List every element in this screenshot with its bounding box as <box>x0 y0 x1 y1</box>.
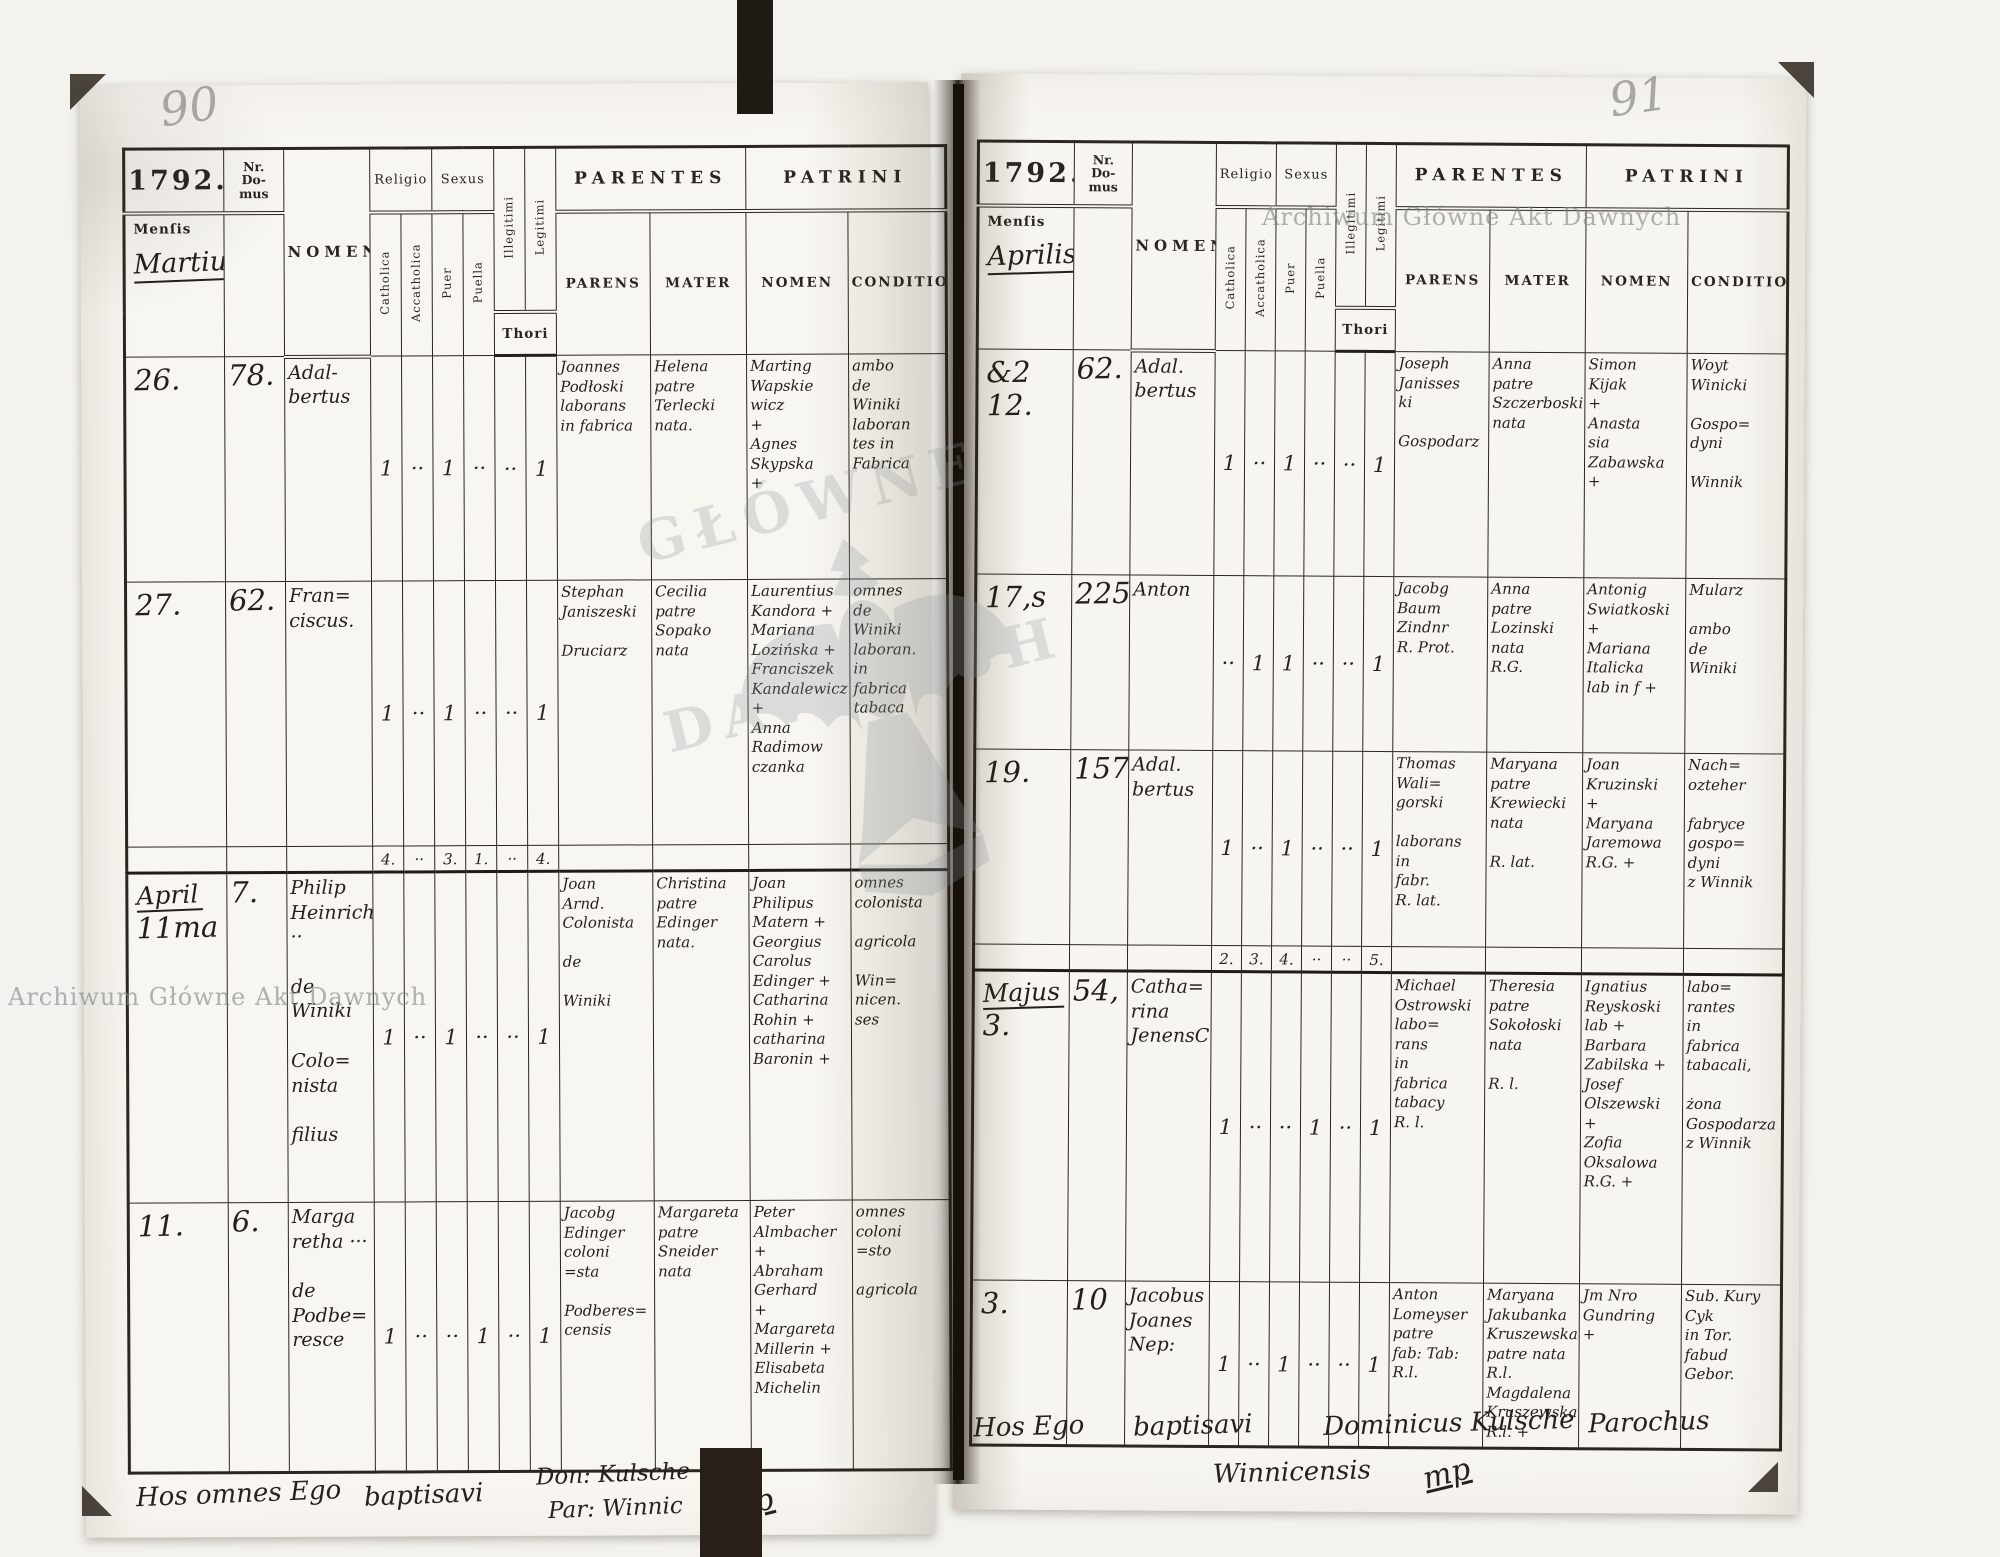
patrini-nomen-cell: Joan Kruzinski + Maryana Jaremowa R.G. + <box>1582 753 1685 949</box>
mater-cell: Margareta patre Sneider nata <box>654 1200 751 1470</box>
puella-label: Puella <box>463 212 495 356</box>
house-number: 62. <box>1076 352 1127 386</box>
total-puer: 4. <box>1271 946 1301 972</box>
tally-illegitimi: ·· <box>496 580 528 845</box>
nomen-label: NOMEN <box>1131 142 1216 351</box>
puella-text: Puella <box>473 261 485 303</box>
tally-accatholica: 1 <box>1243 576 1274 751</box>
handwritten-page-number: 90 <box>156 75 222 137</box>
tally-catholica: 1 <box>1214 350 1245 575</box>
total-puer: 3. <box>435 846 466 872</box>
tally-puella: ·· <box>464 356 496 581</box>
tally-legitimi: 1 <box>528 871 560 1201</box>
accatholica-label: Accatholica <box>401 212 433 356</box>
mensis-header-cell: Menſis Martius <box>124 213 225 357</box>
tally-accatholica: ·· <box>1242 751 1273 946</box>
year-label: 1792. <box>978 141 1074 206</box>
tally-illegitimi: ·· <box>498 1201 530 1471</box>
parens-label: PARENS <box>556 211 651 355</box>
parentes-label: PARENTES <box>1396 144 1586 209</box>
total-catholica: 4. <box>373 846 404 872</box>
religio-label: Religio <box>370 148 432 212</box>
puer-label: Puer <box>432 212 464 356</box>
patrini-nomen-label: NOMEN <box>746 210 849 354</box>
mater-cell: Maryana patre Krewiecki nata R. lat. <box>1486 752 1583 948</box>
mater-cell: Anna patre Szczerboski nata <box>1488 352 1585 578</box>
total-catholica: 2. <box>1211 945 1241 971</box>
illegitimi-label: Illegitimi <box>494 147 526 311</box>
totals-empty <box>1391 947 1485 974</box>
day-number: 11. <box>137 1208 224 1243</box>
manu-propria-flourish: mp <box>1419 1451 1474 1496</box>
month-in-cell: April <box>136 879 203 913</box>
tally-accatholica: ·· <box>405 1202 437 1472</box>
nr-domus-label: Nr. Do- mus <box>224 148 284 212</box>
nr-domus-empty-cell <box>1073 206 1132 350</box>
day-number: 27. <box>135 587 222 622</box>
mensis-cell: 26. <box>125 357 226 582</box>
conditio-cell: Mularz ambo de Winiki <box>1685 578 1786 754</box>
nr-domus-label: Nr. Do- mus <box>1074 142 1132 206</box>
parens-cell: Joseph Janisses ki Gospodarz <box>1394 352 1489 578</box>
tally-accatholica: ·· <box>1240 972 1272 1282</box>
total-accatholica: 3. <box>1241 946 1271 972</box>
puella-text: Puella <box>1315 257 1327 299</box>
illegitimi-text: Illegitimi <box>504 196 516 259</box>
attestation-parish: Par: Winnic <box>548 1493 684 1524</box>
mensis-header-cell: Menſis Aprilis <box>977 205 1074 350</box>
tally-catholica: 1 <box>371 581 403 846</box>
day-number: 11ma <box>136 910 223 945</box>
tally-legitimi: 1 <box>529 1201 561 1471</box>
tally-puella: ·· <box>465 581 497 846</box>
totals-empty <box>227 846 287 872</box>
tally-illegitimi: ·· <box>1332 751 1363 946</box>
house-number: 54, <box>1073 974 1124 1008</box>
house-number: 62. <box>229 584 283 618</box>
conditio-cell: Nach= ozteher fabryce gospo= dyni z Winn… <box>1684 753 1785 949</box>
tally-puella: ·· <box>1303 576 1334 751</box>
tally-catholica: 1 <box>374 1202 406 1472</box>
conditio-cell: Woyt Winicki Gospo= dyni Winnik <box>1686 353 1787 579</box>
tally-illegitimi: ·· <box>497 871 529 1201</box>
accatholica-text: Accatholica <box>411 243 423 322</box>
attestation-priest: Don: Kulsche <box>535 1459 690 1491</box>
header-band-top: 1792. Nr. Do- mus NOMEN Religio Sexus Il… <box>124 146 946 214</box>
header-band-top: 1792. Nr. Do- mus NOMEN Religio Sexus Il… <box>978 141 1788 210</box>
legitimi-text: Legitimi <box>535 199 547 255</box>
house-number: 10 <box>1071 1283 1122 1317</box>
tally-legitimi: 1 <box>1362 751 1393 946</box>
parens-cell: Joan Arnd. Colonista de Winiki <box>559 871 654 1201</box>
house-number: 6. <box>231 1205 285 1239</box>
conditio-cell: labo= rantes in fabrica tabacali, żona G… <box>1682 974 1784 1285</box>
tally-catholica: 1 <box>1210 971 1242 1281</box>
tally-catholica: 1 <box>373 872 405 1202</box>
catholica-label: Catholica <box>370 212 402 356</box>
puer-text: Puer <box>1285 262 1297 294</box>
thori-label: Thori <box>494 311 556 355</box>
total-illegitimi: ·· <box>497 845 528 871</box>
tally-puer: ·· <box>436 1202 468 1472</box>
totals-empty <box>1683 948 1783 975</box>
tally-puer: 1 <box>1273 576 1304 751</box>
total-legitimi: 4. <box>528 845 559 871</box>
nr-cell: 78. <box>225 356 286 581</box>
child-name-cell: Adal- bertus <box>285 356 372 581</box>
patrini-nomen-cell: Simon Kijak + Anasta sia Zabawska + <box>1584 353 1687 579</box>
patrini-nomen-cell: Antonig Swiatkoski + Mariana Italicka la… <box>1583 578 1686 754</box>
month-name: Aprilis <box>987 238 1074 275</box>
tally-puer: 1 <box>1274 351 1305 576</box>
tally-puer: 1 <box>433 356 465 581</box>
attestation-text: Hos omnes Ego <box>135 1475 341 1513</box>
house-number: 7. <box>230 876 284 910</box>
patrini-nomen-cell: Peter Almbacher + Abraham Gerhard + Marg… <box>750 1200 853 1470</box>
attestation-priest: Dominicus Kulsche <box>1323 1405 1575 1442</box>
tally-legitimi: 1 <box>1360 972 1392 1282</box>
tally-accatholica: ·· <box>402 581 434 846</box>
attestation-title: Parochus <box>1588 1406 1710 1439</box>
house-number: 78. <box>228 359 282 393</box>
mensis-cell: April 11ma <box>127 873 228 1203</box>
tally-legitimi: 1 <box>527 580 559 845</box>
totals-empty <box>127 847 227 873</box>
tally-catholica: ·· <box>1213 575 1244 750</box>
accatholica-text: Accatholica <box>1255 238 1267 317</box>
tally-catholica: 1 <box>1212 750 1243 945</box>
tally-illegitimi: ·· <box>1330 972 1362 1282</box>
patrini-label: PATRINI <box>1586 145 1788 210</box>
total-puella: ·· <box>1301 946 1331 972</box>
sexus-label: Sexus <box>1276 143 1336 207</box>
total-legitimi: 5. <box>1361 946 1391 972</box>
tally-puella: ·· <box>1302 751 1333 946</box>
religio-label: Religio <box>1216 142 1276 206</box>
spine-ribbon-bottom <box>700 1448 762 1557</box>
catholica-text: Catholica <box>380 251 392 315</box>
patrini-label: PATRINI <box>746 146 946 211</box>
tally-puer: 1 <box>1272 751 1303 946</box>
register-row: Majus 3. 54, Catha= rina JenensC 1 ·· ··… <box>972 970 1784 1285</box>
attestation-parish: Winnicensis <box>1212 1455 1371 1490</box>
nr-cell: 6. <box>228 1202 289 1472</box>
nr-domus-empty-cell <box>224 212 285 356</box>
child-name-cell: Marga retha ··· de Podbe= resce <box>288 1202 375 1472</box>
parentes-label: PARENTES <box>556 146 746 211</box>
child-name-cell: Catha= rina JenensC <box>1126 971 1212 1282</box>
child-name-cell: Philip Heinrich ·· de Winiki Colo= nista… <box>287 872 374 1202</box>
mensis-cell: 11. <box>128 1203 229 1473</box>
tally-illegitimi: ·· <box>495 355 527 580</box>
patrini-nomen-cell: Ignatius Reyskoski lab + Barbara Zabilsk… <box>1580 974 1684 1285</box>
tally-illegitimi: ·· <box>1333 576 1364 751</box>
totals-empty <box>1485 947 1581 974</box>
thori-label: Thori <box>1335 307 1395 351</box>
handwritten-page-number: 91 <box>1606 66 1671 127</box>
legitimi-label: Legitimi <box>525 147 557 311</box>
nr-cell: 62. <box>226 581 287 846</box>
puer-text: Puer <box>442 267 454 299</box>
total-accatholica: ·· <box>404 846 435 872</box>
mensis-cell: 27. <box>126 582 227 847</box>
mensis-cell: Majus 3. <box>972 970 1070 1281</box>
mensis-label: Menſis <box>987 213 1069 230</box>
tally-accatholica: ·· <box>404 872 436 1202</box>
catholica-text: Catholica <box>1225 245 1237 309</box>
register-row: 11. 6. Marga retha ··· de Podbe= resce 1… <box>128 1200 951 1474</box>
totals-empty <box>1581 948 1683 975</box>
tally-puer: ·· <box>1270 972 1302 1282</box>
parens-cell: Jacobg Baum Zindnr R. Prot. <box>1393 577 1488 753</box>
child-name-cell: Adal. bertus <box>1130 350 1215 576</box>
attestation-text: baptisavi <box>363 1478 483 1513</box>
spine-ribbon-top <box>737 0 773 114</box>
archive-watermark-text: Archiwum Główne Akt Dawnych <box>8 983 427 1011</box>
parens-cell: Thomas Wali= gorski laborans in fabr. R.… <box>1392 752 1487 948</box>
tally-puella: ·· <box>1304 351 1335 576</box>
tally-legitimi: 1 <box>526 355 558 580</box>
baptism-attestation: Hos Ego baptisavi Dominicus Kulsche Paro… <box>963 1403 1784 1508</box>
tally-puella: ·· <box>466 872 498 1202</box>
tally-accatholica: ·· <box>402 356 434 581</box>
mensis-label: Menſis <box>133 221 219 237</box>
scanned-register-photo: { "watermark": { "archive_name": "Archiw… <box>0 0 2000 1557</box>
archive-watermark-text: Archiwum Główne Akt Dawnych <box>1262 203 1681 231</box>
day-number: 3. <box>982 1008 1064 1042</box>
parens-cell: Michael Ostrowski labo= rans in fabrica … <box>1390 973 1486 1284</box>
day-number: 3. <box>981 1286 1063 1320</box>
tally-catholica: 1 <box>371 356 403 581</box>
conditio-label: CONDITIO <box>848 210 947 354</box>
eagle-icon <box>684 484 1099 979</box>
tally-puella: 1 <box>467 1202 499 1472</box>
nr-cell: 54, <box>1068 971 1128 1281</box>
tally-puer: 1 <box>434 581 466 846</box>
tally-legitimi: 1 <box>1364 351 1395 576</box>
tally-legitimi: 1 <box>1363 576 1394 751</box>
nomen-label: NOMEN <box>284 148 371 356</box>
conditio-label: CONDITIO <box>1687 209 1788 354</box>
year-label: 1792. <box>124 149 224 213</box>
tally-illegitimi: ·· <box>1334 351 1365 576</box>
tally-accatholica: ·· <box>1244 351 1275 576</box>
day-number: 26. <box>134 363 221 398</box>
catholica-label: Catholica <box>1215 206 1246 350</box>
child-name-cell: Fran= ciscus. <box>286 581 373 846</box>
tally-puella: 1 <box>1300 972 1332 1282</box>
attestation-text: Hos Ego <box>973 1410 1085 1443</box>
totals-empty <box>287 846 373 872</box>
totals-empty <box>559 845 653 871</box>
total-puella: 1. <box>466 846 497 872</box>
attestation-text: baptisavi <box>1133 1409 1253 1442</box>
nr-cell: 7. <box>227 872 288 1202</box>
mater-label: MATER <box>650 210 747 354</box>
tally-puer: 1 <box>435 872 467 1202</box>
parens-cell: Jacobg Edinger coloni =sta Podberes= cen… <box>560 1201 655 1471</box>
sexus-label: Sexus <box>432 148 494 212</box>
mater-cell: Theresia patre Sokołoski nata R. l. <box>1484 973 1582 1284</box>
month-name: Martius <box>133 245 225 283</box>
mater-cell: Anna patre Lozinski nata R.G. <box>1487 577 1584 753</box>
total-illegitimi: ·· <box>1331 946 1361 972</box>
